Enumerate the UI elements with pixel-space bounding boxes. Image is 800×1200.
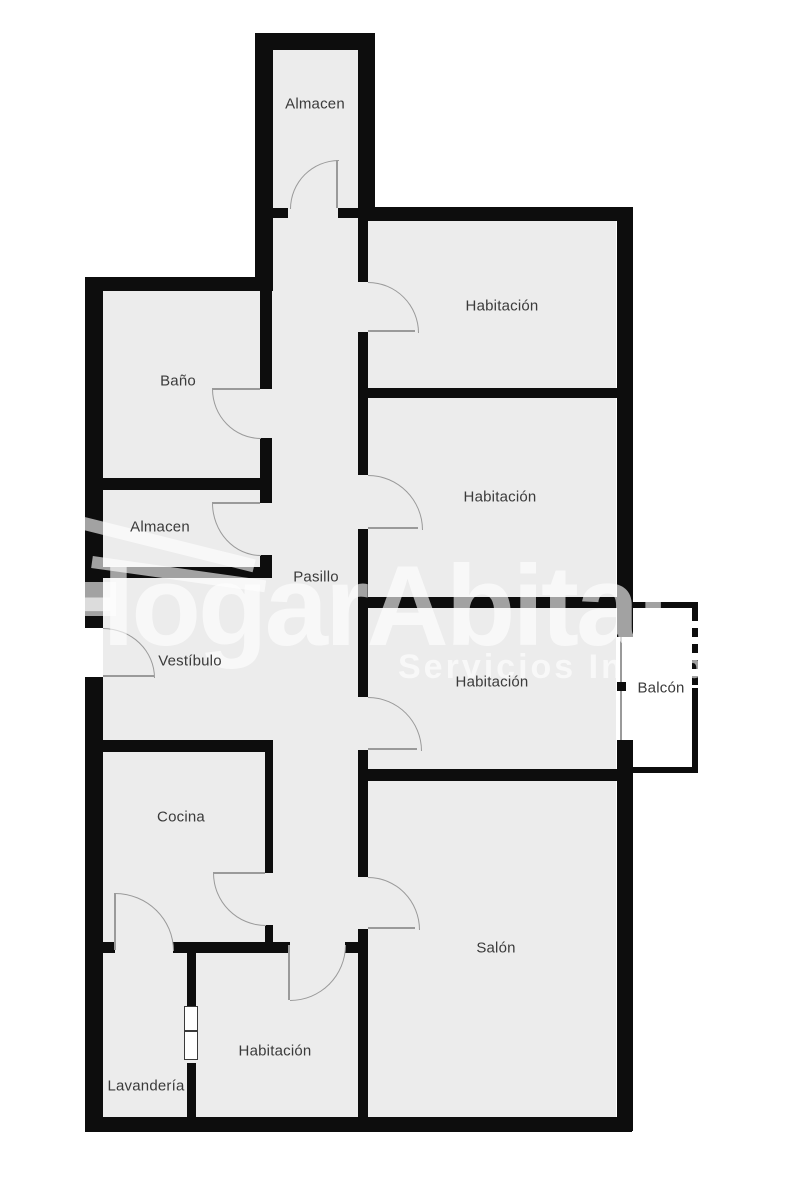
wall-almacen-right xyxy=(358,33,375,221)
wall-almacen-top xyxy=(255,33,375,50)
wall-pasillo-left xyxy=(260,291,272,389)
wall-pasillo-right xyxy=(358,221,368,282)
floor-area xyxy=(358,221,616,291)
window-divider xyxy=(184,1030,198,1032)
door-leaf xyxy=(336,160,338,208)
door-leaf xyxy=(103,675,154,677)
wall-almacen2-bottom xyxy=(103,567,272,578)
wall-lavanderia-hab4 xyxy=(187,953,196,1007)
room-label-cocina: Cocina xyxy=(157,809,205,826)
wall-hab3-salon xyxy=(358,769,632,781)
door-leaf xyxy=(368,330,415,332)
wall-hab2-hab3 xyxy=(358,597,632,608)
wall-pasillo-right xyxy=(358,750,368,877)
room-label-almacen-2: Almacen xyxy=(130,519,190,536)
wall-hab1-hab2 xyxy=(358,388,632,398)
room-label-salon: Salón xyxy=(476,940,515,957)
wall-salon-hab4 xyxy=(358,942,368,1117)
door-leaf xyxy=(114,893,116,950)
room-label-vestibulo: Vestíbulo xyxy=(158,653,222,670)
balcony-railing xyxy=(692,612,698,688)
floorplan-canvas: HogarAbitat Servicios Inmobiliarios Alma… xyxy=(0,0,800,1200)
door-leaf xyxy=(368,527,418,529)
wall-pasillo-right xyxy=(358,929,368,942)
wall-exterior-left-lower xyxy=(85,677,103,1131)
door-leaf xyxy=(288,945,290,1000)
door-leaf xyxy=(368,748,417,750)
wall-balcony-mullion xyxy=(617,682,626,691)
room-label-habitacion-3: Habitación xyxy=(456,674,529,691)
window xyxy=(184,1006,198,1060)
door-leaf xyxy=(368,927,415,929)
wall-lavanderia-hab4 xyxy=(187,1063,196,1117)
wall-exterior-bottom xyxy=(85,1117,632,1132)
room-label-lavanderia: Lavandería xyxy=(107,1078,184,1095)
wall-balcony-right xyxy=(692,688,698,773)
wall-exterior-top-right xyxy=(358,207,632,221)
wall-exterior-left-upper xyxy=(85,277,103,628)
wall-bano-almacen2 xyxy=(103,478,272,490)
wall-exterior-right-lower xyxy=(617,740,633,1131)
wall-almacen-bottom-seg xyxy=(255,208,288,218)
wall-vestibulo-cocina xyxy=(103,740,273,752)
room-label-habitacion-1: Habitación xyxy=(466,298,539,315)
wall-balcony-right xyxy=(692,602,698,612)
balcony-window xyxy=(620,637,622,682)
door-leaf xyxy=(212,502,260,504)
wall-cocina-right xyxy=(265,925,273,942)
wall-balcony-bottom xyxy=(627,767,698,773)
room-label-balcon: Balcón xyxy=(637,680,684,697)
wall-pasillo-left xyxy=(260,438,272,478)
room-label-bano: Baño xyxy=(160,373,196,390)
door-leaf xyxy=(213,872,265,874)
wall-bottom-divider xyxy=(345,942,358,953)
wall-balcony-top xyxy=(627,602,698,608)
wall-exterior-top-left xyxy=(85,277,273,291)
room-label-almacen-top: Almacen xyxy=(285,96,345,113)
wall-exterior-right-upper xyxy=(617,207,633,637)
wall-almacen-left xyxy=(255,33,273,291)
room-label-habitacion-4: Habitación xyxy=(239,1043,312,1060)
wall-pasillo-right xyxy=(358,529,368,697)
wall-cocina-right xyxy=(265,752,273,873)
room-label-pasillo: Pasillo xyxy=(293,569,339,586)
wall-bottom-divider xyxy=(173,942,290,953)
balcony-window xyxy=(620,691,622,740)
watermark-logo-roof-left xyxy=(0,494,73,548)
wall-pasillo-right xyxy=(358,332,368,475)
room-label-habitacion-2: Habitación xyxy=(464,489,537,506)
wall-pasillo-left xyxy=(260,490,272,503)
door-leaf xyxy=(212,388,260,390)
